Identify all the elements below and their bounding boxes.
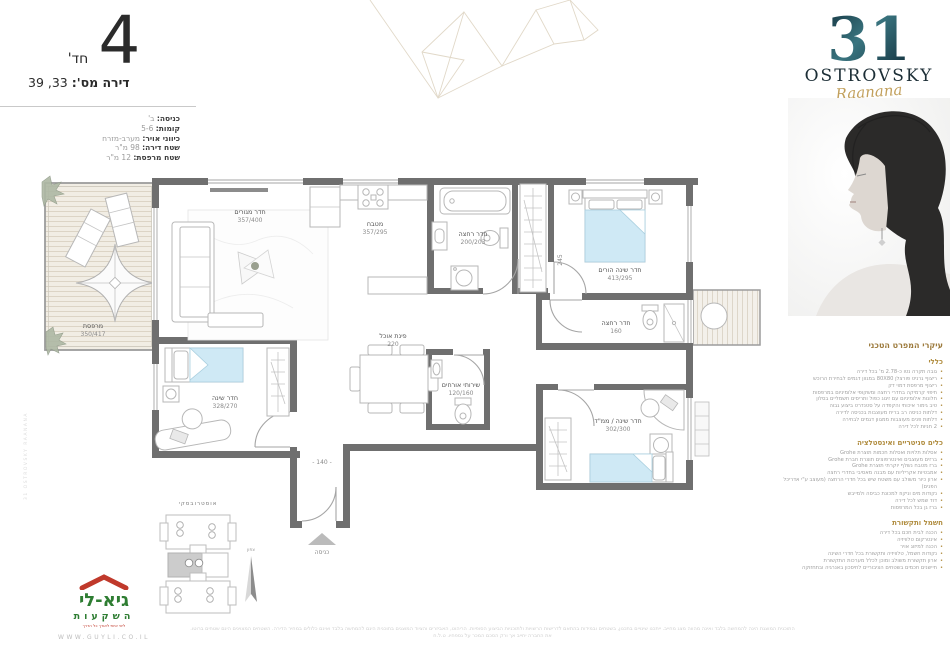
wardrobe-se: [545, 418, 571, 480]
room-label-dining: פינת אוכל: [379, 332, 406, 340]
spec-item: ברזים מעוצבים ואינטרפוצים תוצרת חברת Gro…: [775, 457, 943, 464]
spec-item: אינטרקום טלוויזיה: [775, 537, 943, 544]
geometric-line-art: [340, 0, 610, 135]
headboard: [583, 190, 647, 198]
spec-item: נקודות חשמל, טלוויזיה ותקשורת בכל חדרי ה…: [775, 551, 943, 558]
spec-section-general: כללי גובה תקרה נטו כ-2.78 מ' בכל דירה רי…: [775, 358, 943, 431]
wardrobe-sw: [267, 348, 289, 416]
bathroom-ensuite: חדר רחצה 160: [601, 304, 684, 342]
room-dims-master: 413/295: [608, 275, 633, 282]
bed-se: [590, 452, 673, 482]
room-label-bath: חדר רחצה: [458, 230, 487, 238]
spec-item: ריצוף גרניט פורצלן 80X80 במגוון דגמים לב…: [775, 376, 943, 383]
sink-guest: [431, 360, 442, 378]
room-dims-dining: 220: [387, 341, 399, 348]
bench: [208, 313, 263, 327]
side-mark: 31 OSTROVSKY RAANANA: [24, 412, 29, 500]
developer-subtitle: השקעות: [48, 611, 160, 622]
spec-section-electric: חשמל ותקשורת הכנה לבית חכם בכל דירה אינט…: [775, 519, 943, 571]
entrance-arrow-icon: [308, 533, 336, 545]
fridge: [310, 187, 340, 227]
disclaimer-line-2: את החברה יחייב אך ורק הסכם המכר על נספחי…: [50, 633, 935, 640]
spec-heading: חשמל ותקשורת: [775, 519, 943, 527]
stove: [358, 185, 388, 209]
room-dims-ensuite: 160: [610, 328, 622, 335]
spec-item: דוד שמש לכל דירה: [775, 498, 943, 505]
room-label-bedroom-sw: חדר שינה: [212, 394, 238, 402]
apartment-number-line: דירה מס': 33, 39: [28, 75, 180, 90]
disclaimer: התוכנית המוצגת הינה להמחשה בלבד ואינה מה…: [50, 626, 935, 639]
spec-item: ברז מטבח נשלף יוקרתי תוצרת Grohe: [775, 463, 943, 470]
apartment-header: 4 חד' דירה מס': 33, 39: [28, 10, 180, 90]
brand-number: 31: [795, 10, 943, 70]
flyer-page: 4 חד' דירה מס': 33, 39 כניסה: ב' קומות: …: [0, 0, 950, 650]
room-label-living: חדר מגורים: [234, 208, 265, 216]
spec-item: הכנה לבית חכם בכל דירה: [775, 530, 943, 537]
detail-floors: קומות: 5-6: [28, 124, 180, 134]
apartment-details: כניסה: ב' קומות: 5-6 כיווני אויר: מערב-מ…: [28, 114, 180, 163]
bathroom-main: חדר רחצה 200/203: [432, 188, 510, 290]
spec-heading: כללי: [775, 358, 943, 366]
spec-item: 2 חניות לכל דירה: [775, 424, 943, 431]
room-dims-wc: 120/160: [449, 390, 474, 397]
room-label-bedroom-se: חדר שינה / ממ"ד: [594, 417, 641, 425]
balcony-east: [693, 290, 760, 345]
utility-ledge: [695, 402, 709, 456]
key-plan: אוסטרובסקי: [146, 501, 250, 621]
spec-title: עיקרי המפרט הטכני: [775, 341, 943, 350]
rooms-number: 4: [98, 10, 140, 73]
detail-apartment-area: שטח דירה: 98 מ"ר: [28, 143, 180, 153]
spec-item: דלתות כניסה רב בריח מעוצבות בכניסה לדירה: [775, 410, 943, 417]
spec-item: ארון תקשורת משולב ומוכן לכלל מערכות התקש…: [775, 558, 943, 565]
rooms-suffix: חד': [68, 51, 89, 73]
bedroom-se: חדר שינה / ממ"ד 302/300: [545, 390, 684, 482]
north-arrow-icon: [241, 553, 261, 605]
room-dims-bath: 200/203: [461, 239, 486, 246]
header-divider: [0, 106, 196, 107]
kitchen-island: [368, 277, 427, 294]
room-label-wc: שירותי אורחים: [442, 381, 481, 389]
spec-item: אסלות תלויות ואסלות חכמות תוצרת Grohe: [775, 450, 943, 457]
detail-directions: כיווני אויר: מערב-מזרח: [28, 134, 180, 144]
key-plan-diagram: [146, 509, 250, 617]
spec-item: הכנה למיזוג אויר: [775, 544, 943, 551]
room-dims-balcony: 350/417: [81, 331, 106, 338]
wardrobe-corridor: [520, 184, 546, 292]
dining-table: [350, 345, 438, 413]
apartment-number-label: דירה מס':: [72, 75, 130, 90]
sofa: [172, 222, 214, 322]
spec-list: עיקרי המפרט הטכני כללי גובה תקרה נטו כ-2…: [775, 341, 943, 572]
spec-item: דלתות פנים מעוצבות ממגוון דגמים לבחירה: [775, 417, 943, 424]
room-label-ensuite: חדר רחצה: [601, 319, 630, 327]
spec-item: חלונות אלומיניום עם זיגוג כפול ותריסים ח…: [775, 396, 943, 403]
sink: [432, 222, 447, 250]
dim-245: 245: [557, 254, 564, 266]
detail-entrance: כניסה: ב': [28, 114, 180, 124]
north-indicator: צפון: [238, 548, 264, 609]
room-dims-bedroom-sw: 328/270: [213, 403, 238, 410]
spec-item: ברז גן בכל המרפסות: [775, 505, 943, 512]
balcony-west: מרפסת 350/417: [42, 176, 155, 355]
spec-item: אמבטיות אקריליות עם מבנה מאסיבי בחדרי רח…: [775, 470, 943, 477]
spec-item: ארון כיור משולב עם משטח שיש בכל חדרי הרח…: [775, 477, 943, 491]
shower: [664, 304, 684, 342]
desk-se: [641, 390, 684, 430]
bedroom-sw: חדר שינה 328/270: [151, 348, 289, 451]
tv: [210, 188, 268, 192]
room-label-balcony: מרפסת: [83, 322, 103, 330]
guest-wc: שירותי אורחים 120/160: [431, 360, 481, 424]
dim-140: - 140 -: [312, 459, 332, 466]
toilet-guest: [455, 398, 471, 424]
room-dims-living: 357/400: [238, 217, 263, 224]
apartment-numbers: 33, 39: [28, 75, 68, 90]
spec-item: גובה תקרה נטו כ-2.78 מ' בכל דירה: [775, 369, 943, 376]
spec-section-sanitary: כלים סניטריים ואינסטלציה אסלות תלויות וא…: [775, 439, 943, 512]
balcony-table: [701, 303, 727, 329]
roof-icon: [76, 574, 132, 590]
spec-item: נקודות מים וניקוז למכונת כביסה ולמייבש: [775, 491, 943, 498]
bed-master: [585, 198, 645, 262]
brand-logo: 31 OSTROVSKY Raanana: [795, 10, 943, 101]
woman-portrait-photo: [788, 98, 950, 316]
detail-balcony-area: שטח מרפסת: 12 מ"ר: [28, 153, 180, 163]
room-dims-bedroom-se: 302/300: [606, 426, 631, 433]
spec-item: חיפוי קרמיקה בחדרי רחצה ומשקופי אלומיניו…: [775, 390, 943, 397]
key-plan-street: אוסטרובסקי: [146, 501, 250, 507]
developer-name: גיא-לי: [48, 592, 160, 610]
room-dims-kitchen: 357/295: [363, 229, 388, 236]
spec-item: טיב גימור איכותי והקפדה על סטנדרט ביצוע …: [775, 403, 943, 410]
room-label-master: חדר שינה הורים: [598, 266, 641, 274]
entrance: - 140 - כניסה: [308, 459, 336, 556]
entrance-label: כניסה: [315, 549, 330, 556]
desk-sw: [151, 403, 232, 452]
bed-sw: [165, 348, 243, 382]
dining-area: פינת אוכל 220: [350, 332, 438, 413]
room-label-kitchen: מטבח: [367, 220, 383, 228]
bathtub: [440, 188, 510, 214]
spec-heading: כלים סניטריים ואינסטלציה: [775, 439, 943, 447]
spec-item: ריצוף מרפסת דמוי דק: [775, 383, 943, 390]
spec-item: חיישנים חכמים בשטחים הציבוריים לחיסכון ב…: [775, 565, 943, 572]
toilet-ensuite: [642, 305, 658, 330]
living-room: חדר מגורים 357/400: [172, 188, 328, 340]
nightstand-sw: [163, 386, 179, 402]
washing-machine: [451, 266, 478, 290]
rooms-count: 4 חד': [28, 10, 180, 73]
